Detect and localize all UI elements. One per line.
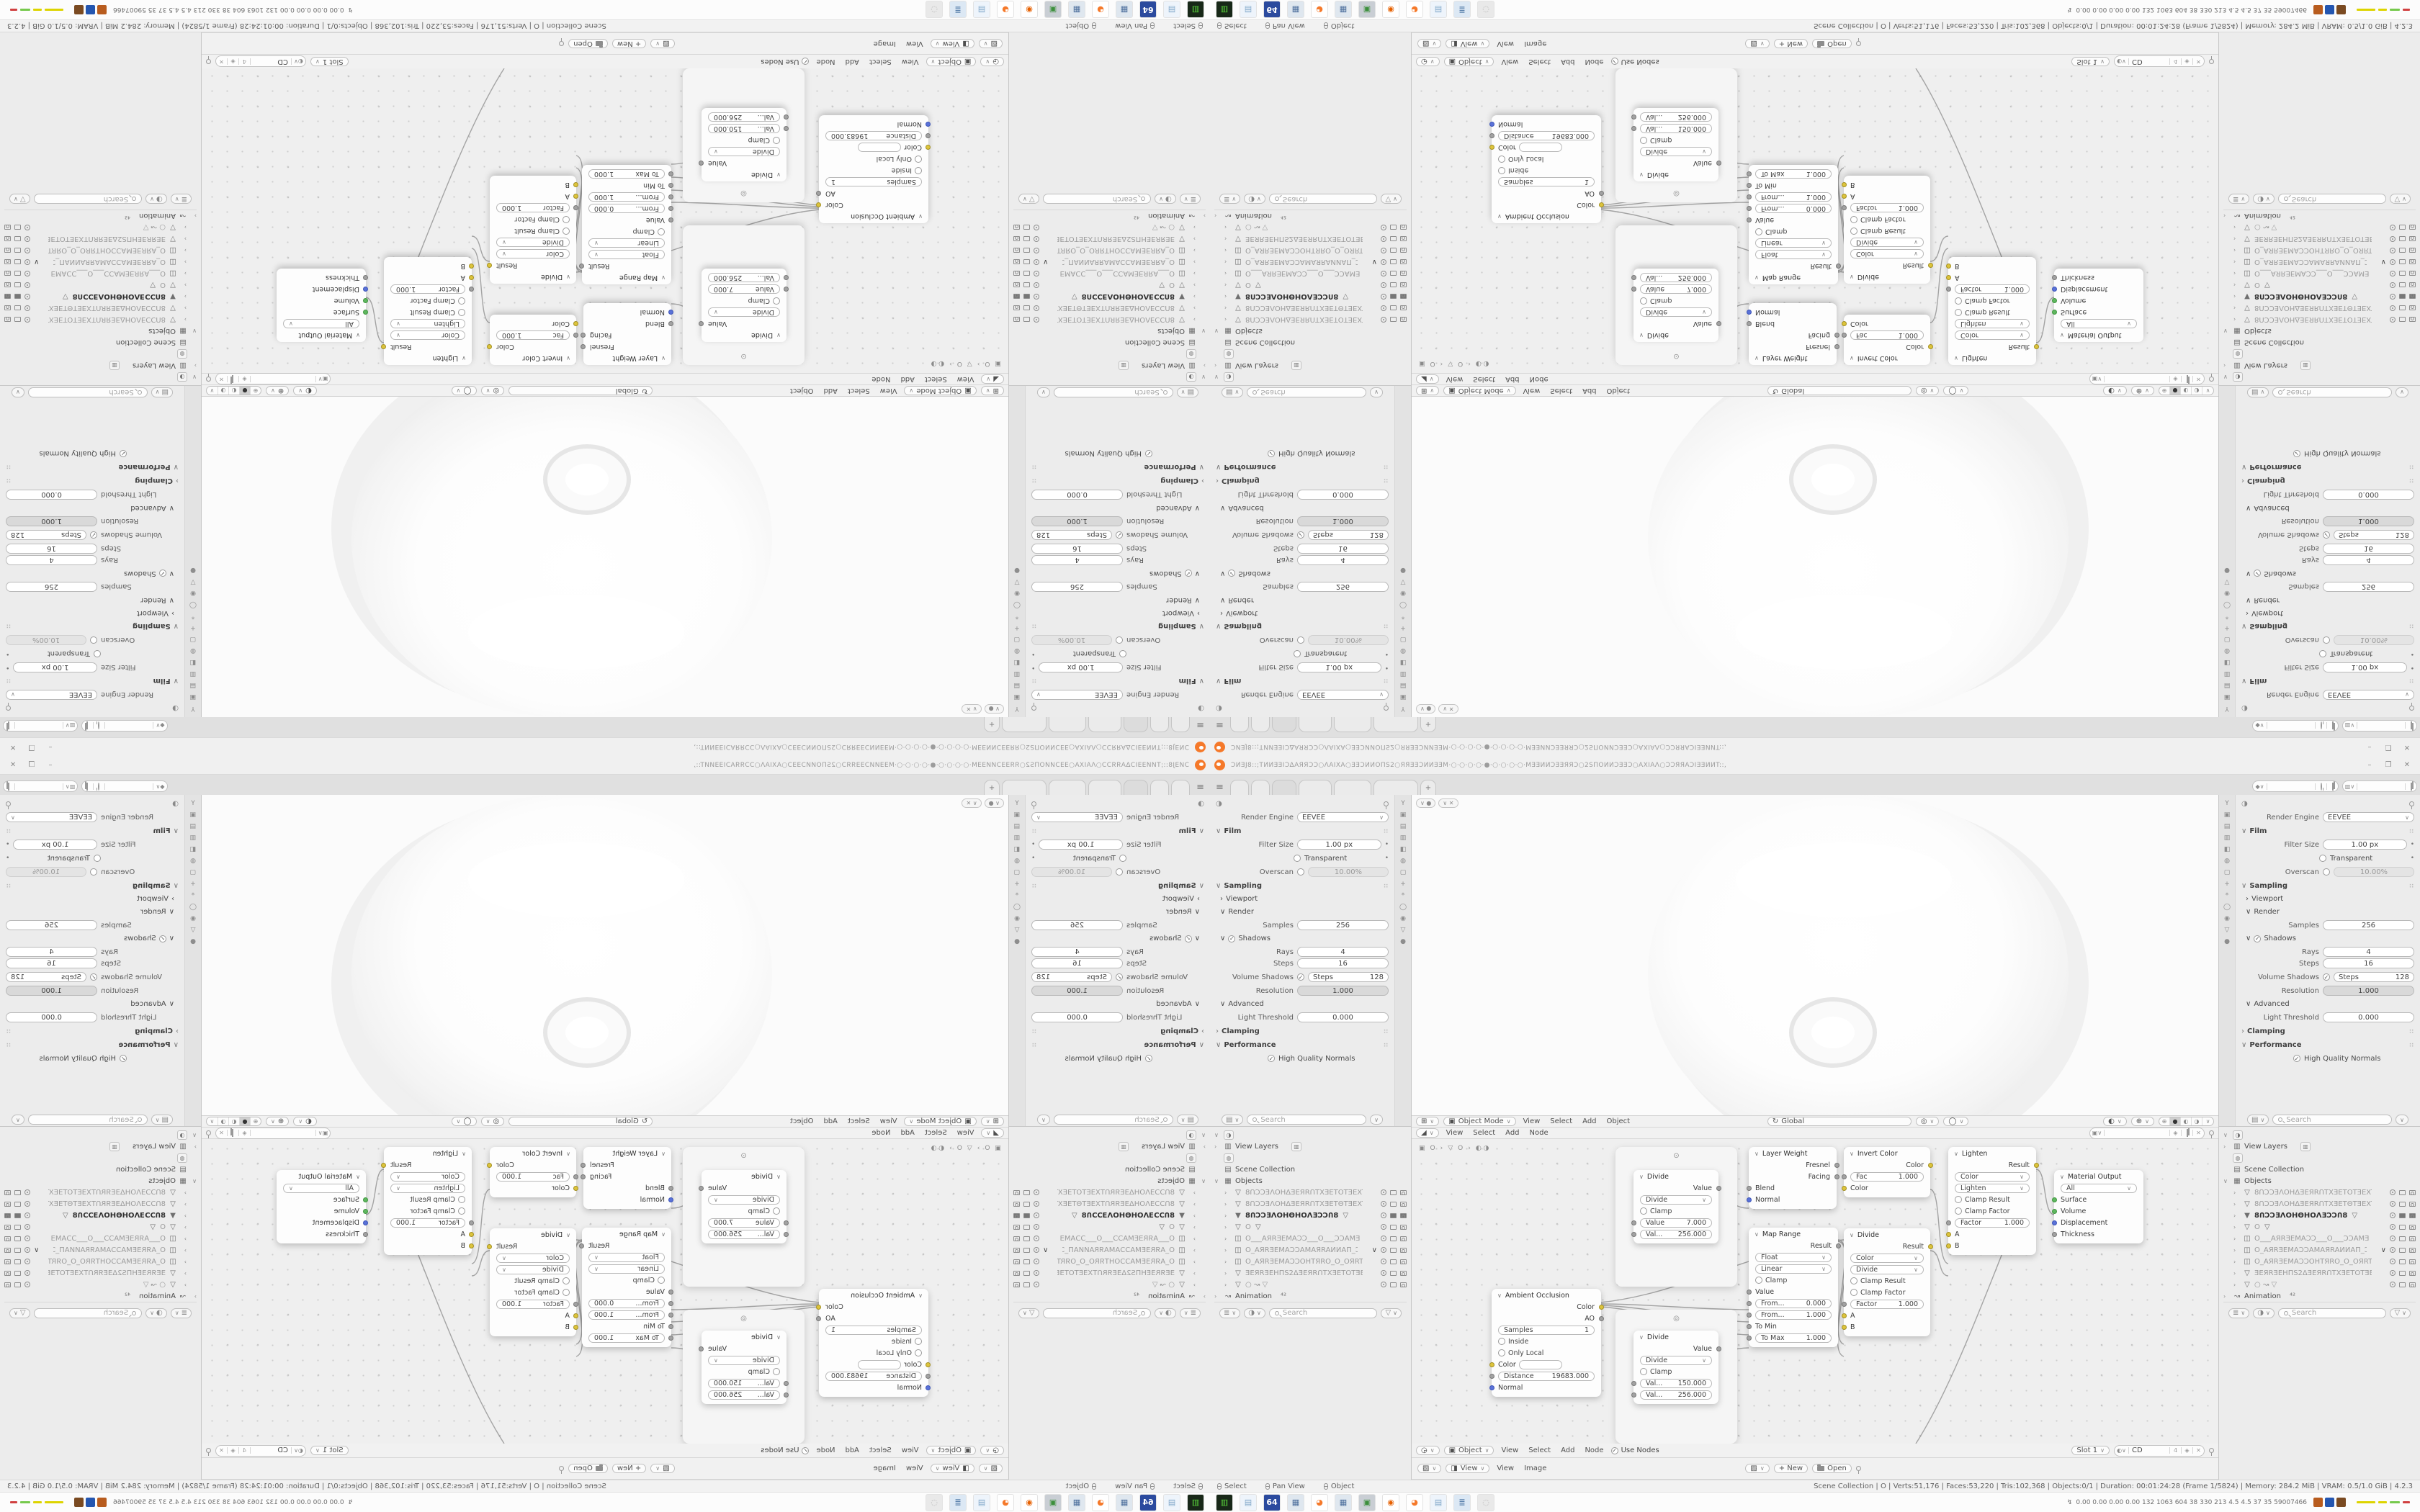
outliner-object-row[interactable]: ›▽ ƎEЯRƎEHΠЅ2ΔƎEЯRՈTXƎETOTƎEXT [2223,1267,2416,1279]
socket-factor-in[interactable] [574,206,579,211]
properties-tab-icon[interactable]: ▤ [187,821,200,832]
viewport-visibility-icon[interactable] [2399,1248,2406,1253]
node-map-range[interactable]: ∨Map Range Result Float∨ Linear∨ Clamp V… [1749,1228,1838,1347]
window-titlebar[interactable]: ƆИƎJ8::;TИИƎƎIƆΔAЯЯƆƆ○ΛAIXA○ƎƎƆИИOΠЅ2○ЯЯ… [1210,756,2420,775]
socket-ao-out[interactable] [817,1316,822,1321]
section-film[interactable]: ∨Film∷ [6,675,179,687]
rays-field[interactable]: 4 [1297,555,1389,565]
outliner-search-input[interactable]: Search [2278,1308,2387,1318]
section-viewport[interactable]: ›Viewport [2241,608,2414,618]
menu-view[interactable]: View [899,1446,922,1454]
slot-select[interactable]: Slot 1∨ [310,57,349,66]
tray-icon-1[interactable] [2313,1498,2323,1507]
taskbar-app-icon[interactable]: ▦ [1335,1,1352,19]
properties-tab-icon[interactable]: Y [1397,703,1410,714]
section-film[interactable]: ∨Film∷ [1031,825,1204,837]
volume-shadow-steps-field[interactable]: Steps128 [6,530,86,540]
render-visibility-icon[interactable] [2409,1282,2416,1287]
editor-type-select[interactable]: ◶∨ [980,1446,1004,1455]
taskbar-app-icon[interactable]: ▤ [1240,1,1257,19]
viewport-visibility-icon[interactable] [1390,306,1397,311]
pin-icon[interactable] [1856,41,1861,46]
render-visibility-icon[interactable] [1013,225,1020,230]
hide-icon[interactable] [24,248,30,253]
open-image-button[interactable]: Open [568,1464,608,1473]
use-nodes-checkbox[interactable] [1611,58,1618,66]
inside-checkbox[interactable] [1498,167,1505,174]
outliner-view-layers[interactable]: › ▥View Layers ▥ [2223,360,2416,372]
editor-type-select[interactable]: ◶∨ [1416,1446,1440,1455]
properties-tab-icon[interactable]: + [2220,622,2234,634]
socket-color-out[interactable] [1928,345,1933,350]
viewport-visibility-icon[interactable] [14,237,21,242]
hide-icon[interactable] [1381,1201,1386,1207]
clamp-result-checkbox[interactable] [563,1277,570,1284]
steps-field[interactable]: 16 [1031,544,1123,554]
properties-tab-icon[interactable]: ▥ [187,832,200,844]
taskbar-app-icon[interactable]: ▥ [1216,1,1233,19]
outliner-object-row[interactable]: ›▼ 8ՈƆƆƎΛOHΘHOΛƎƆƆՈ8▽ [1013,1210,1206,1221]
properties-tab-icon[interactable]: ◧ [2220,844,2234,855]
outliner-object-row[interactable]: ›▽ ƎEЯRƎEHΠЅ2ΔƎEЯRՈTXƎETOTƎEXT [4,233,197,245]
proportional-edit-button[interactable]: ◯∨ [1943,1117,1968,1126]
socket-from-min-in[interactable] [1747,1301,1752,1306]
outliner-objects[interactable]: ∨ ▦Objects [4,325,197,337]
properties-tab-icon[interactable]: ◧ [1010,844,1024,855]
socket-a-in[interactable] [1946,1232,1951,1237]
material-name-field[interactable]: CD [2129,57,2169,67]
outliner-search-input[interactable]: Search [1269,194,1378,204]
scene-selector[interactable]: ◆∨ [81,720,168,732]
properties-tab-icon[interactable]: ● [2220,936,2234,948]
taskbar-app-icon[interactable]: ◌ [1477,1,1494,19]
socket-result-out[interactable] [488,1244,493,1249]
inside-checkbox[interactable] [915,1338,922,1345]
socket-a-in[interactable] [574,194,579,199]
outliner-scene-collection[interactable]: ▤Scene Collection [1013,337,1206,348]
socket-blend-in[interactable] [1747,322,1752,327]
copy-icon[interactable] [2326,723,2338,729]
properties-tab-icon[interactable]: ▣ [2220,809,2234,821]
anim-dot-icon[interactable]: • [1385,841,1389,848]
properties-tab-icon[interactable]: ◉ [187,588,200,599]
volume-shadow-steps-field[interactable]: Steps128 [1308,972,1389,982]
render-visibility-icon[interactable] [2409,294,2416,300]
render-visibility-icon[interactable] [2409,1213,2416,1218]
viewport-visibility-icon[interactable] [2399,294,2406,300]
chevron-down-icon[interactable]: ∨ [207,387,218,395]
outliner-object-row[interactable]: ›▽ 8ՈƆƆƎΛOHΔƎEЯRՈTXƎETOTƎEXT [1214,314,1407,325]
socket-normal-in[interactable] [1747,1197,1752,1202]
pin-icon[interactable] [559,1466,564,1471]
properties-tab-icon[interactable]: ▣ [1010,691,1024,703]
properties-tab-icon[interactable]: ▤ [1397,680,1410,691]
socket-result-out[interactable] [382,345,387,350]
image-browse-button[interactable]: ▨∨ [650,1464,674,1473]
render-visibility-icon[interactable] [1400,1248,1407,1253]
viewport-visibility-icon[interactable] [2399,237,2406,242]
render-visibility-icon[interactable] [1400,1271,1407,1276]
transparent-checkbox[interactable] [94,650,101,657]
unlink-button[interactable]: ✕ [216,1447,228,1454]
close-button[interactable]: ✕ [4,743,22,751]
hide-icon[interactable] [1034,225,1039,230]
solid-shading-icon[interactable]: ● [239,1117,250,1125]
menu-image[interactable]: Image [1521,1464,1549,1472]
properties-tab-icon[interactable]: ▥ [2220,832,2234,844]
samples-field[interactable]: 256 [6,920,97,930]
rays-field[interactable]: 4 [2323,555,2414,565]
hq-normals-checkbox[interactable] [120,450,127,457]
workspace-tab[interactable] [1251,780,1270,795]
shading-mode-group[interactable]: ⊕ ● ◐ ◑ ∨ [206,1117,261,1126]
material-shading-icon[interactable]: ◐ [2181,387,2192,395]
transparent-checkbox[interactable] [1119,650,1126,657]
outliner-object-row[interactable]: ›▼ 8ՈƆƆƎΛOHΘHOΛƎƆƆՈ8▽ [1214,291,1407,302]
section-performance[interactable]: ∨Performance∷ [6,1039,179,1050]
overscan-field[interactable]: 10.00% [6,635,86,645]
render-visibility-icon[interactable] [4,260,11,265]
outliner-object-row[interactable]: ›▽ 8ՈƆƆƎΛOHΔƎEЯRՈTXƎETΘTƎEXT [2223,1198,2416,1210]
outliner-object-row[interactable]: ›▼ 8ՈƆƆƎΛOHΘHOΛƎƆƆՈ8▽ [1013,291,1206,302]
resolution-field[interactable]: 1.000 [1297,516,1389,526]
socket-a-in[interactable] [1842,1313,1847,1318]
render-visibility-icon[interactable] [1400,1190,1407,1195]
section-viewport[interactable]: ›Viewport [1216,894,1389,904]
outliner-object-row[interactable]: ›▽ ○ ↝ ▽ [1013,222,1206,233]
anim-dot-icon[interactable]: • [6,855,9,862]
clamp-result-checkbox[interactable] [1850,228,1857,235]
outliner-filter-mode-button[interactable]: ◑∨ [1155,1308,1176,1318]
add-workspace-button[interactable]: + [1420,717,1436,732]
properties-tab-icon[interactable]: ▽ [1010,576,1024,588]
snap-button[interactable]: ◎∨ [481,386,505,395]
outliner-search-input[interactable]: Search [34,1308,143,1318]
socket-value-out[interactable] [699,1346,704,1351]
taskbar-app-icon[interactable]: ◕ [1092,1,1109,19]
rays-field[interactable]: 4 [2323,947,2414,957]
properties-tab-icon[interactable]: ▤ [2220,680,2234,691]
section-film[interactable]: ∨Film∷ [1216,825,1389,837]
render-visibility-icon[interactable] [1400,225,1407,230]
unlink-button[interactable]: ✕ [216,58,228,65]
section-clamping[interactable]: ›Clamping∷ [6,1025,179,1037]
render-visibility-icon[interactable] [4,306,11,311]
properties-tab-icon[interactable]: ▥ [1397,668,1410,680]
viewport-visibility-icon[interactable] [1390,1213,1397,1218]
taskbar-app-icon[interactable]: ▤ [1240,1494,1257,1511]
hide-icon[interactable] [1381,225,1386,230]
display-filter-button[interactable]: ▤∨ [1177,1115,1198,1125]
render-visibility-icon[interactable] [1013,1271,1020,1276]
render-visibility-icon[interactable] [1400,271,1407,276]
clamp-factor-checkbox[interactable] [1955,1207,1962,1215]
use-nodes-checkbox[interactable] [802,1447,809,1454]
section-film[interactable]: ∨Film∷ [6,825,179,837]
socket-distance-in[interactable] [926,134,931,139]
scene-name-field[interactable] [105,721,153,731]
workspace-tab-active[interactable] [1124,780,1148,795]
workspace-tab[interactable] [1230,780,1249,795]
display-filter-button[interactable]: ▤∨ [1222,387,1243,397]
pin-icon[interactable] [1031,801,1036,806]
section-render[interactable]: ∨Render [2241,906,2414,917]
copy-icon[interactable] [2405,783,2416,790]
socket-surface-in[interactable] [2052,310,2057,315]
section-clamping[interactable]: ›Clamping∷ [6,475,179,487]
menu-icon[interactable]: ≡ [1216,719,1224,730]
socket-fac-in[interactable] [574,1174,579,1179]
socket-volume-in[interactable] [364,1209,369,1214]
viewport-gizmo-button[interactable]: ∨ ✕ [1438,798,1458,808]
socket-value-out[interactable] [1716,1346,1721,1351]
node-mix-divide[interactable]: ∨Divide Result Color∨ Divide∨ Clamp Resu… [1844,176,1930,284]
material-name-field[interactable]: CD [2129,1446,2169,1456]
properties-tab-icon[interactable]: ◉ [1010,588,1024,599]
menu-image[interactable]: Image [871,40,899,48]
viewport-visibility-icon[interactable] [1390,1202,1397,1207]
section-film[interactable]: ∨Film∷ [2241,675,2414,687]
editor-type-select[interactable]: ⊞∨ [981,386,1004,395]
menu-add[interactable]: Add [820,1117,840,1125]
workspace-tab[interactable] [1171,780,1190,795]
editor-type-button[interactable]: ∨ ● [1416,704,1435,714]
taskbar-app-icon[interactable]: ▦ [1116,1,1133,19]
editor-type-select[interactable]: ◶∨ [980,57,1004,66]
render-visibility-icon[interactable] [2409,1259,2416,1264]
volume-shadows-checkbox[interactable] [2323,531,2330,539]
anim-dot-icon[interactable]: • [2411,650,2414,657]
outliner-scene-collection[interactable]: ▤Scene Collection [1214,1164,1407,1175]
properties-tab-icon[interactable]: ◧ [2220,657,2234,668]
outliner-object-row[interactable]: ›▽ 8ՈƆƆƎΛOHΔƎEЯRՈTXƎETOTƎEXT [1013,1187,1206,1198]
section-clamping[interactable]: ›Clamping∷ [1031,1025,1204,1037]
socket-b-in[interactable] [470,1243,475,1248]
properties-tab-icon[interactable]: ▣ [187,809,200,821]
viewport-visibility-icon[interactable] [1023,1190,1030,1195]
socket-result-out[interactable] [1836,264,1841,269]
socket-result-out[interactable] [580,1243,585,1248]
display-filter-button[interactable]: ▤∨ [1222,1115,1243,1125]
hide-icon[interactable] [1034,236,1039,242]
socket-to-min-in[interactable] [1747,1324,1752,1329]
taskbar-app-icon[interactable]: ▣ [1044,1,1062,19]
socket-volume-in[interactable] [2052,1209,2057,1214]
properties-tab-icon[interactable]: ◍ [2220,855,2234,867]
section-performance[interactable]: ∨Performance∷ [1216,462,1389,473]
clamp-checkbox[interactable] [1755,228,1762,235]
world-icon[interactable]: ◍ [2233,1153,2243,1163]
workspace-tab[interactable] [1230,717,1249,732]
overscan-checkbox[interactable] [1297,636,1304,644]
mode-select[interactable]: ▣ Object Mode∨ [1443,1117,1515,1126]
properties-tab-icon[interactable]: ◍ [1010,645,1024,657]
section-viewport[interactable]: ›Viewport [6,894,179,904]
taskbar-app-icon[interactable]: ▥ [1216,1494,1233,1511]
users-count-button[interactable]: 4 [2169,1447,2181,1454]
socket-color-in[interactable] [1489,1362,1494,1367]
viewport-3d[interactable]: ∨ ● ∨ ✕ [1412,795,2218,1116]
socket-fac-in[interactable] [1842,333,1847,338]
properties-tab-icon[interactable]: ▽ [2220,924,2234,936]
viewport-visibility-icon[interactable] [1023,271,1030,276]
outliner-object-row[interactable]: ›◫ O_AЯRƎEMAƆƆAMAЯRAИИAΠ_Ɔ ∨ [4,256,197,268]
taskbar-app-icon[interactable]: ◕ [1311,1494,1328,1511]
viewport-visibility-icon[interactable] [2399,271,2406,276]
outliner-object-row[interactable]: ›▽ 8ՈƆƆƎΛOHΔƎEЯRՈTXƎETOTƎEXT [1214,1187,1407,1198]
pin-icon[interactable] [1384,801,1389,806]
menu-node[interactable]: Node [1582,1446,1606,1454]
section-film[interactable]: ∨Film∷ [2241,825,2414,837]
clamp-checkbox[interactable] [1640,1368,1647,1375]
socket-result-out[interactable] [2034,345,2039,350]
view-layer-name-field[interactable] [15,721,63,731]
clamp-factor-checkbox[interactable] [563,216,570,223]
socket-value2-in[interactable] [1631,1232,1636,1237]
hide-icon[interactable] [24,1282,30,1287]
node-layer-weight[interactable]: ∨Layer Weight Fresnel Facing Blend Norma… [1749,1147,1837,1209]
shading-mode-group[interactable]: ⊕ ● ◐ ◑ ∨ [206,386,261,395]
viewport-visibility-icon[interactable] [1390,1282,1397,1287]
clamp-factor-checkbox[interactable] [1955,297,1962,305]
clamp-checkbox[interactable] [773,297,780,305]
hide-icon[interactable] [1381,1224,1386,1230]
hq-normals-checkbox[interactable] [1145,450,1152,457]
material-name-field[interactable] [251,374,315,384]
properties-tab-icon[interactable]: * [187,611,200,622]
outliner-object-row[interactable]: ›◫ O___AЯRƎEMAƆƆ___O___ƆƆAMƎ [1214,1233,1407,1244]
new-image-button[interactable]: + New [1774,1464,1808,1473]
outliner-object-row[interactable]: ›▽ 8ՈƆƆƎΛOHΔƎEЯRՈTXƎETΘTƎEXT [4,302,197,314]
shadows-checkbox[interactable] [1185,570,1192,577]
hide-icon[interactable] [1034,271,1039,276]
render-engine-select[interactable]: EEVEE∨ [2323,812,2414,822]
section-clamping[interactable]: ›Clamping∷ [2241,475,2414,487]
hide-icon[interactable] [24,225,30,230]
properties-tab-icon[interactable]: ▢ [1397,867,1410,878]
anim-dot-icon[interactable]: • [1031,855,1035,862]
samples-field[interactable]: 256 [2323,582,2414,592]
socket-result-out[interactable] [1928,1244,1933,1249]
shadows-checkbox[interactable] [1185,935,1192,942]
render-visibility-icon[interactable] [1013,248,1020,253]
render-visibility-icon[interactable] [1400,283,1407,288]
overlays-button[interactable]: ◐∨ [293,1117,317,1126]
properties-tab-icon[interactable]: ▽ [187,576,200,588]
socket-thickness-in[interactable] [2052,276,2057,281]
viewport-visibility-icon[interactable] [1390,318,1397,323]
section-sampling[interactable]: ∨Sampling∷ [2241,621,2414,632]
shader-context-select[interactable]: ▣ Object∨ [926,57,977,66]
viewport-visibility-icon[interactable] [14,1282,21,1287]
scene-selector[interactable]: ◆∨ [2252,720,2339,732]
volume-shadows-checkbox[interactable] [90,531,97,539]
section-sampling[interactable]: ∨Sampling∷ [1031,880,1204,891]
transform-orientation-select[interactable]: ↻ Global [1767,386,1912,395]
filter-size-field[interactable]: 1.00 px [2323,662,2407,672]
menu-view[interactable]: View [1498,58,1521,66]
socket-from-max-in[interactable] [1747,195,1752,200]
outliner-animation[interactable]: › ↝Animation ⁴² [4,1290,197,1302]
hide-icon[interactable] [2390,1282,2396,1287]
section-performance[interactable]: ∨Performance∷ [2241,1039,2414,1050]
outliner-object-row[interactable]: ›▼ 8ՈƆƆƎΛOHΘHOΛƎƆƆՈ8▽ [4,1210,197,1221]
properties-tab-icon[interactable]: ◯ [1010,901,1024,913]
system-tray[interactable] [2313,5,2346,14]
outliner-view-layers[interactable]: › ▥View Layers ▥ [1214,360,1407,372]
outliner-view-layers[interactable]: › ▥View Layers ▥ [1214,1140,1407,1152]
light-threshold-field[interactable]: 0.000 [1297,490,1389,500]
viewport-visibility-icon[interactable] [14,1190,21,1195]
options-button[interactable]: ∨ [12,387,24,397]
outliner-object-row[interactable]: ›▽ ƎEЯRƎEHΠЅ2ΔƎEЯRՈTXƎETOTƎEXT [1013,233,1206,245]
close-button[interactable]: ✕ [2398,761,2416,769]
socket-b-in[interactable] [1946,264,1951,269]
properties-tab-icon[interactable]: ◍ [187,645,200,657]
socket-thickness-in[interactable] [364,1232,369,1237]
outliner-animation[interactable]: › ↝Animation ⁴² [2223,1290,2416,1302]
viewport-visibility-icon[interactable] [1023,1282,1030,1287]
outliner-view-layers[interactable]: › ▥View Layers ▥ [1013,1140,1206,1152]
socket-from-max-in[interactable] [669,195,674,200]
editor-type-select[interactable]: ▨∨ [1417,1464,1441,1473]
filter-size-field[interactable]: 1.00 px [13,662,97,672]
socket-fresnel-out[interactable] [581,345,586,350]
world-icon[interactable]: ◍ [2233,350,2243,359]
outliner-object-row[interactable]: ›◫ O___AЯRƎEMAƆƆ___O___ƆƆAMƎ [2223,1233,2416,1244]
render-visibility-icon[interactable] [2409,1236,2416,1241]
shader-node-canvas[interactable]: ▣O ›▽O ›◐ ◑ [1412,1139,2218,1444]
options-button[interactable]: ∨ [1037,387,1050,397]
socket-value-in[interactable] [669,1290,674,1295]
properties-tab-icon[interactable]: ◯ [1397,901,1410,913]
render-visibility-icon[interactable] [1400,237,1407,242]
material-name-field[interactable] [251,1128,315,1138]
render-visibility-icon[interactable] [4,294,11,300]
viewport-visibility-icon[interactable] [1390,1248,1397,1253]
material-datablock-selector[interactable]: ◐∨ CD 4 ◈ ✕ [2114,56,2205,68]
hide-icon[interactable] [2390,225,2396,230]
node-invert-color[interactable]: ∨Invert Color Color Fac1.000 Color [1844,315,1930,365]
taskbar-app-icon[interactable]: ◕ [997,1494,1014,1511]
socket-a-in[interactable] [470,1232,475,1237]
copy-icon[interactable] [2181,1130,2192,1136]
minimize-button[interactable]: – [2361,761,2378,769]
outliner-object-row[interactable]: ›▽ ○ ↝ ▽ [1214,222,1407,233]
steps-field[interactable]: 16 [2323,544,2414,554]
anim-dot-icon[interactable]: • [2411,855,2414,862]
viewport-visibility-icon[interactable] [1390,1225,1397,1230]
taskbar-app-icon[interactable]: 64 [1139,1,1157,19]
filter-blend-icon[interactable]: ◑ [1224,1130,1234,1140]
workspace-tab[interactable] [1049,780,1086,795]
outliner-scene-collection[interactable]: ▤Scene Collection [4,337,197,348]
menu-view[interactable]: View [1520,387,1543,395]
editor-type-button[interactable]: ∨ ● [1416,798,1435,808]
hide-icon[interactable] [2390,317,2396,323]
hide-icon[interactable] [2390,271,2396,276]
hide-icon[interactable] [1034,1189,1039,1195]
users-count-button[interactable]: 4 [239,1447,251,1454]
menu-view[interactable]: View [1494,1464,1517,1472]
hide-icon[interactable] [1381,1247,1386,1253]
socket-a-in[interactable] [470,276,475,281]
hide-icon[interactable] [1381,1236,1386,1241]
menu-add[interactable]: Add [897,1129,917,1137]
section-viewport[interactable]: ›Viewport [1031,894,1204,904]
render-visibility-icon[interactable] [1400,318,1407,323]
section-shadows[interactable]: ∨Shadows [6,933,179,944]
